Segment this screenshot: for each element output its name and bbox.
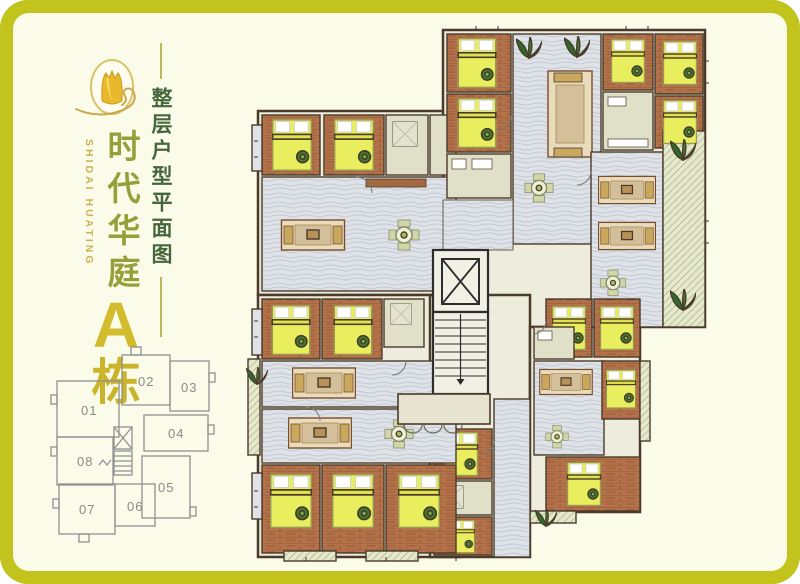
bed-icon bbox=[458, 39, 496, 88]
bed-icon bbox=[606, 370, 635, 408]
plan-title: 整层户型平面图 bbox=[146, 87, 176, 269]
bed-icon bbox=[334, 306, 372, 355]
keyplan-label-05: 05 bbox=[158, 480, 174, 495]
keyplan-core bbox=[99, 427, 132, 475]
bed-icon bbox=[568, 463, 601, 506]
sofa-icon bbox=[282, 220, 345, 250]
unit-03 bbox=[591, 34, 705, 327]
entrance-lobby bbox=[398, 394, 490, 424]
brand-block: SHIDAI HUATING 时代华庭 bbox=[83, 129, 145, 297]
keyplan-label-07: 07 bbox=[79, 502, 95, 517]
title-tick-top bbox=[160, 43, 162, 79]
brand-name-en: SHIDAI HUATING bbox=[83, 139, 95, 297]
bed-icon bbox=[458, 99, 496, 148]
bed-icon bbox=[399, 474, 440, 527]
unit-02 bbox=[443, 34, 601, 250]
keyplan-label-04: 04 bbox=[168, 426, 184, 441]
keyplan-label-03: 03 bbox=[181, 380, 197, 395]
keyplan-label-06: 06 bbox=[127, 499, 143, 514]
bed-icon bbox=[612, 40, 645, 83]
sofa-icon bbox=[548, 71, 592, 157]
keyplan-diagram: 01 02 03 04 05 06 07 08 bbox=[35, 339, 233, 561]
keyplan-zigzag bbox=[99, 460, 111, 465]
bed-icon bbox=[273, 120, 312, 171]
unit-01 bbox=[252, 115, 456, 291]
floorplan-drawing bbox=[246, 21, 714, 566]
bed-icon bbox=[664, 101, 697, 144]
sofa-icon bbox=[598, 222, 655, 249]
bed-icon bbox=[271, 474, 312, 527]
bed-icon bbox=[664, 42, 697, 85]
flyer-panel: SHIDAI HUATING 时代华庭 A 栋 整层户型平面图 bbox=[13, 13, 787, 571]
brand-name-cn: 时代华庭 bbox=[97, 129, 145, 297]
sofa-icon bbox=[293, 368, 356, 398]
bed-icon bbox=[333, 474, 374, 527]
sofa-icon bbox=[540, 370, 593, 395]
bed-icon bbox=[601, 307, 634, 350]
keyplan-label-01: 01 bbox=[81, 403, 97, 418]
plan-title-column: 整层户型平面图 bbox=[145, 43, 177, 337]
title-tick-bottom bbox=[160, 277, 162, 337]
bed-icon bbox=[272, 306, 310, 355]
bed-icon bbox=[335, 120, 374, 171]
tulip-logo-icon bbox=[68, 49, 154, 133]
sofa-icon bbox=[289, 418, 352, 448]
flyer-frame: SHIDAI HUATING 时代华庭 A 栋 整层户型平面图 bbox=[0, 0, 800, 584]
sofa-icon bbox=[598, 176, 655, 203]
keyplan-label-02: 02 bbox=[138, 374, 154, 389]
keyplan-label-08: 08 bbox=[77, 454, 93, 469]
unit-07 bbox=[252, 409, 456, 561]
